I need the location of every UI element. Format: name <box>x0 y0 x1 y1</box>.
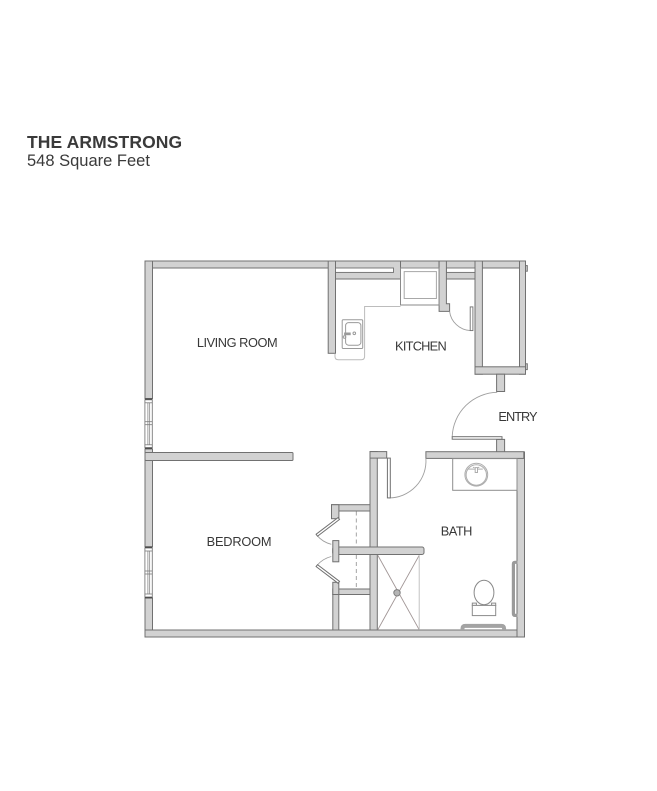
svg-text:BEDROOM: BEDROOM <box>207 534 272 549</box>
svg-text:ENTRY: ENTRY <box>498 409 538 424</box>
svg-text:BATH: BATH <box>441 524 472 539</box>
svg-text:KITCHEN: KITCHEN <box>395 339 446 354</box>
svg-text:LIVING ROOM: LIVING ROOM <box>197 335 277 350</box>
